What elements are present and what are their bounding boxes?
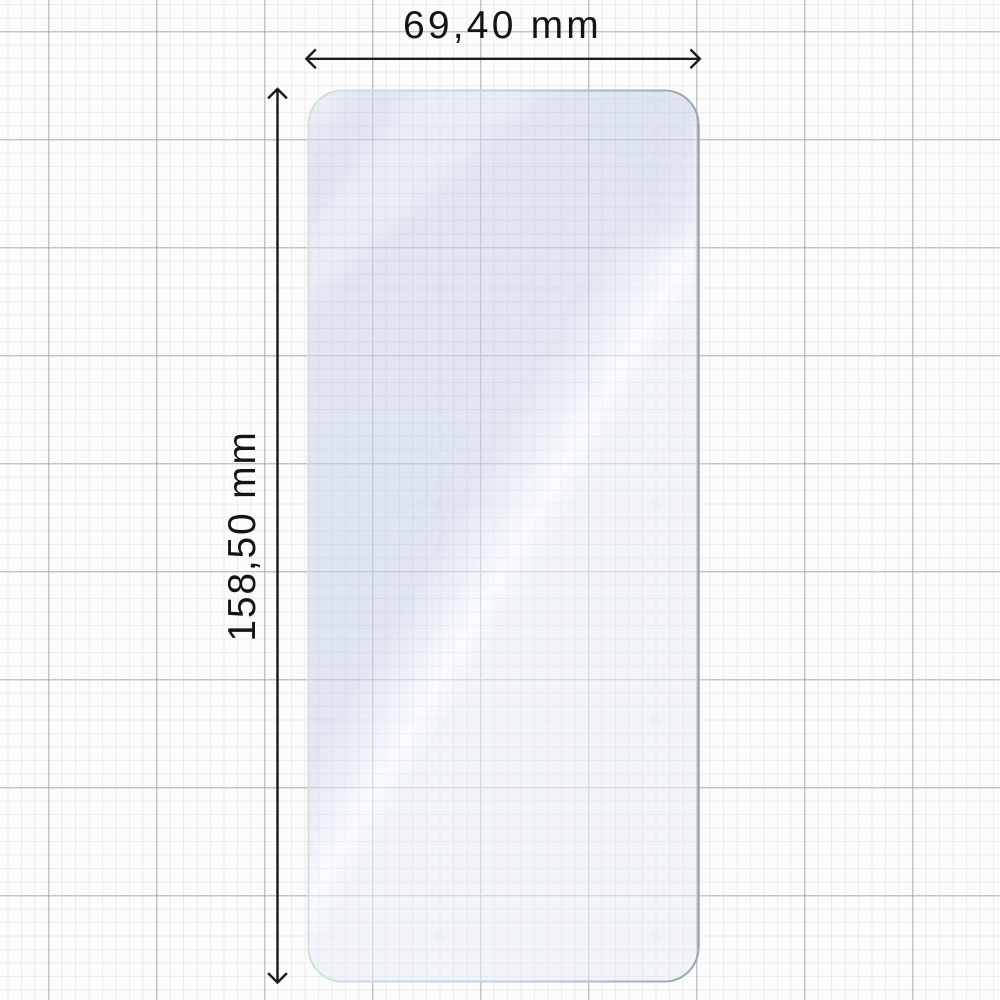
- svg-text:69,40 mm: 69,40 mm: [403, 4, 602, 47]
- svg-text:158,50 mm: 158,50 mm: [221, 430, 264, 641]
